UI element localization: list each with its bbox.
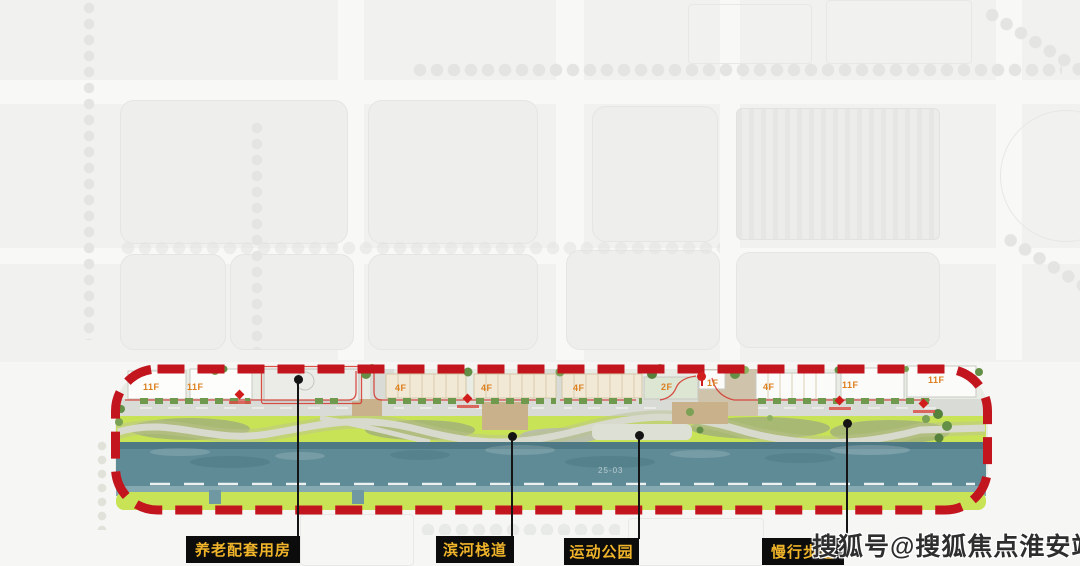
legend-riverside-boardwalk: 滨河栈道 [436,536,514,563]
legend-elderly-care: 养老配套用房 [186,536,300,563]
building-floor-label: 1F [707,379,719,388]
entrance-marker-icon [913,400,935,414]
sohu-watermark: 搜狐号@搜狐焦点淮安站 [812,527,1080,563]
building-floor-label: 4F [481,384,493,393]
building-floor-label: 11F [928,376,945,385]
entrance-marker-icon [829,397,851,411]
building-floor-label: 4F [763,383,775,392]
building-floor-label: 2F [661,383,673,392]
building-floor-label: 11F [187,383,204,392]
site-plan-graphic [0,0,1080,566]
plot-number: 25-03 [598,466,623,475]
leader-line-elderly-care [297,379,299,537]
building-floor-label: 4F [573,384,585,393]
building-floor-label: 11F [143,383,160,392]
entrance-marker-icon [229,391,251,405]
legend-sports-park: 运动公园 [564,538,639,565]
site-plan-canvas: 11F 11F 4F 4F 4F 2F 1F 4F 11F 11F 25-03 … [0,0,1080,566]
building-floor-label: 11F [842,381,859,390]
building-floor-label: 4F [395,384,407,393]
entrance-marker-icon [457,395,479,409]
main-entrance-pin-icon [697,372,706,381]
leader-line-walking-path [846,423,848,539]
leader-line-boardwalk [511,436,513,537]
leader-line-sports-park [638,435,640,539]
